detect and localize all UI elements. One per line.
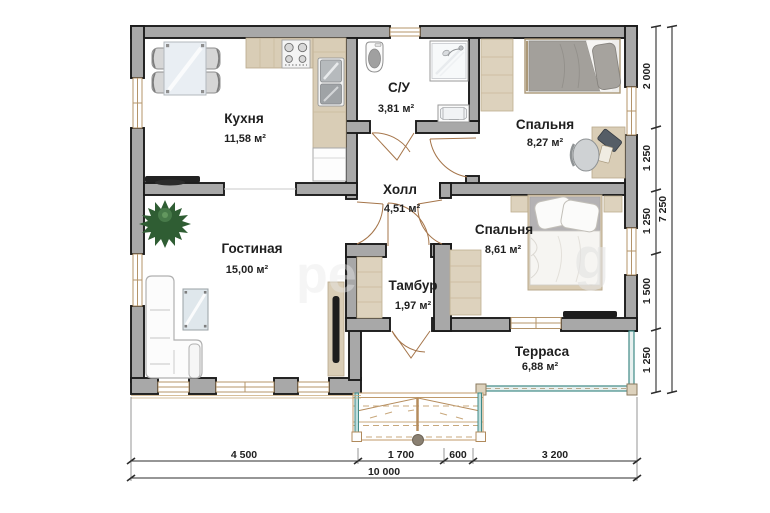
svg-text:11,58 м²: 11,58 м² <box>224 133 266 145</box>
svg-text:Спальня: Спальня <box>516 117 574 132</box>
svg-text:1 700: 1 700 <box>388 449 414 461</box>
svg-text:g: g <box>574 226 609 291</box>
svg-text:С/У: С/У <box>388 80 411 95</box>
svg-text:Кухня: Кухня <box>224 111 263 126</box>
svg-text:7 250: 7 250 <box>657 196 669 222</box>
svg-text:3 200: 3 200 <box>542 449 568 461</box>
svg-text:2 000: 2 000 <box>641 63 653 89</box>
svg-text:Гостиная: Гостиная <box>221 241 282 256</box>
svg-text:Холл: Холл <box>383 182 417 197</box>
svg-text:8,61 м²: 8,61 м² <box>485 244 522 256</box>
svg-text:1 250: 1 250 <box>641 145 653 171</box>
svg-text:3,81 м²: 3,81 м² <box>378 103 415 115</box>
svg-text:8,27 м²: 8,27 м² <box>527 137 564 149</box>
svg-text:1 250: 1 250 <box>641 208 653 234</box>
svg-text:1,97 м²: 1,97 м² <box>395 300 432 312</box>
svg-text:4 500: 4 500 <box>231 449 257 461</box>
svg-text:ре: ре <box>296 246 357 304</box>
svg-text:6,88 м²: 6,88 м² <box>522 361 559 373</box>
svg-text:4,51 м²: 4,51 м² <box>384 203 421 215</box>
svg-text:Спальня: Спальня <box>475 222 533 237</box>
svg-text:600: 600 <box>449 449 467 461</box>
svg-text:Терраса: Терраса <box>515 344 570 359</box>
svg-text:1 250: 1 250 <box>641 347 653 373</box>
svg-text:1 500: 1 500 <box>641 278 653 304</box>
svg-text:15,00 м²: 15,00 м² <box>226 264 269 276</box>
svg-text:Тамбур: Тамбур <box>389 278 438 293</box>
svg-text:10 000: 10 000 <box>368 466 400 478</box>
